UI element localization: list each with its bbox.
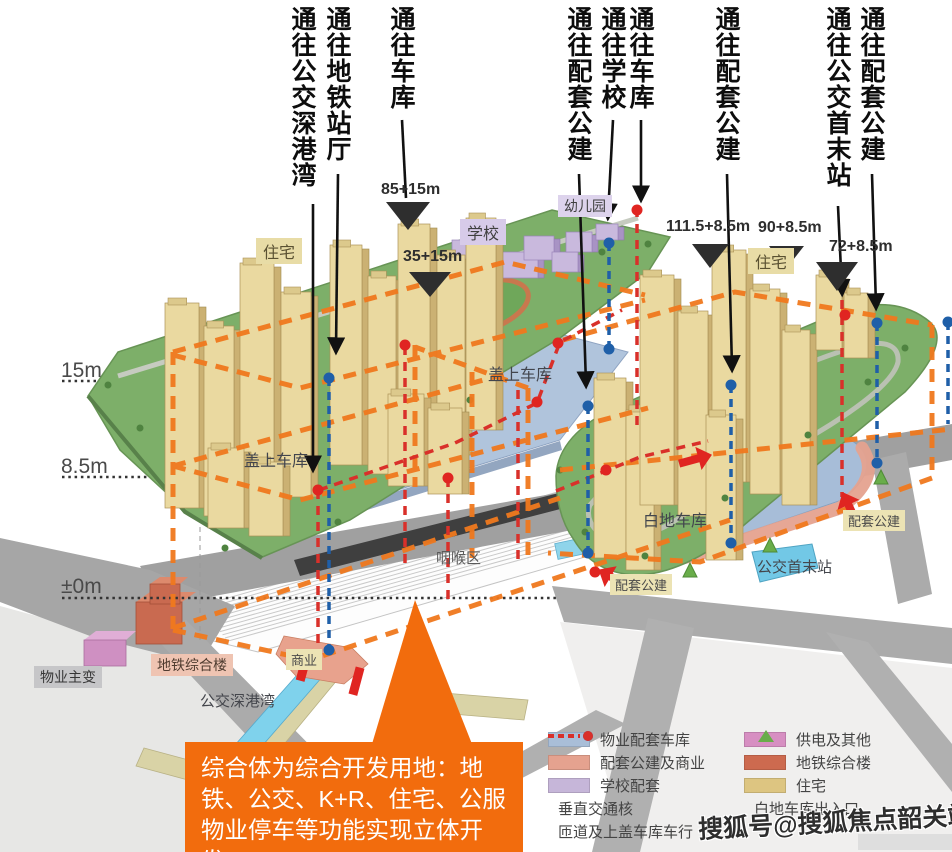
label-deck-garage-right: 盖上车库: [488, 361, 552, 385]
callout-pointer: [372, 600, 472, 744]
diagram-canvas: [0, 0, 952, 852]
legend-label: 配套公建及商业: [600, 752, 705, 773]
legend-swatch: [548, 755, 590, 770]
legend-label: 供电及其他: [796, 729, 871, 750]
height-35-15: 35+15m: [403, 248, 462, 266]
callout-text: 综合体为综合开发用地：地铁、公交、K+R、住宅、公服物业停车等功能实现立体开发。: [201, 755, 506, 852]
legend-swatch: [548, 778, 590, 793]
label-throat-area: 咽喉区: [436, 547, 481, 568]
legend-label: 垂直交通核: [558, 798, 633, 819]
label-to-school: 通往学校: [598, 6, 626, 110]
label-school: 学校: [460, 219, 506, 245]
level-0m: ±0m: [61, 575, 102, 599]
label-to-public-bldg-3: 通往配套公建: [857, 6, 885, 162]
label-metro-complex: 地铁综合楼: [151, 654, 233, 676]
legend-column-left: 物业配套车库配套公建及商业学校配套垂直交通核匝道及上盖车库车行: [548, 728, 705, 843]
label-to-public-bldg-2: 通往配套公建: [712, 6, 740, 162]
label-to-garage-1: 通往车库: [387, 6, 415, 110]
legend-label: 匝道及上盖车库车行: [558, 821, 693, 842]
legend-row: 地铁综合楼: [744, 751, 871, 774]
legend-row: 住宅: [744, 774, 871, 797]
legend-label: 住宅: [796, 775, 826, 796]
label-bus-terminus: 公交首末站: [757, 556, 832, 577]
label-to-bus-terminus: 通往公交首末站: [823, 6, 851, 188]
label-public-bldg-bottom: 配套公建: [610, 574, 672, 595]
legend-label: 学校配套: [600, 775, 660, 796]
height-72-8: 72+8.5m: [829, 238, 893, 256]
level-8-5m: 8.5m: [61, 455, 108, 479]
label-to-metro-hall: 通往地铁站厅: [323, 6, 351, 162]
legend-row: 配套公建及商业: [548, 751, 705, 774]
legend-label: 物业配套车库: [600, 729, 690, 750]
label-bus-bay: 公交深港湾: [200, 690, 275, 711]
legend-label: 地铁综合楼: [796, 752, 871, 773]
callout-box: 综合体为综合开发用地：地铁、公交、K+R、住宅、公服物业停车等功能实现立体开发。: [185, 742, 523, 852]
label-kindergarten: 幼儿园: [558, 195, 612, 217]
label-to-public-bldg-1: 通往配套公建: [564, 6, 592, 162]
legend-dash-line-icon: [548, 728, 594, 744]
axonometric-planning-diagram: 通往公交深港湾 通往地铁站厅 通往车库 通往配套公建 通往学校 通往车库 通往配…: [0, 0, 952, 852]
height-85-15: 85+15m: [381, 181, 440, 199]
legend-row: 垂直交通核: [548, 797, 705, 820]
label-ground-garage: 白地车库: [643, 507, 707, 531]
level-15m: 15m: [61, 359, 102, 383]
legend-row: 学校配套: [548, 774, 705, 797]
label-public-bldg-right: 配套公建: [843, 510, 905, 531]
height-111-8: 111.5+8.5m: [666, 218, 750, 236]
label-to-garage-2: 通往车库: [626, 6, 654, 110]
legend-swatch: [744, 755, 786, 770]
label-substation: 物业主变: [34, 666, 102, 688]
label-deck-garage-left: 盖上车库: [244, 447, 308, 471]
label-commercial: 商业: [286, 649, 322, 670]
legend-entrance-triangle-icon: [744, 728, 790, 744]
legend-row: 匝道及上盖车库车行: [548, 820, 705, 843]
legend-swatch: [744, 778, 786, 793]
label-residential-right: 住宅: [748, 248, 794, 274]
height-90-8: 90+8.5m: [758, 219, 822, 237]
label-to-bus-bay: 通往公交深港湾: [288, 6, 316, 188]
label-residential-left: 住宅: [256, 238, 302, 264]
